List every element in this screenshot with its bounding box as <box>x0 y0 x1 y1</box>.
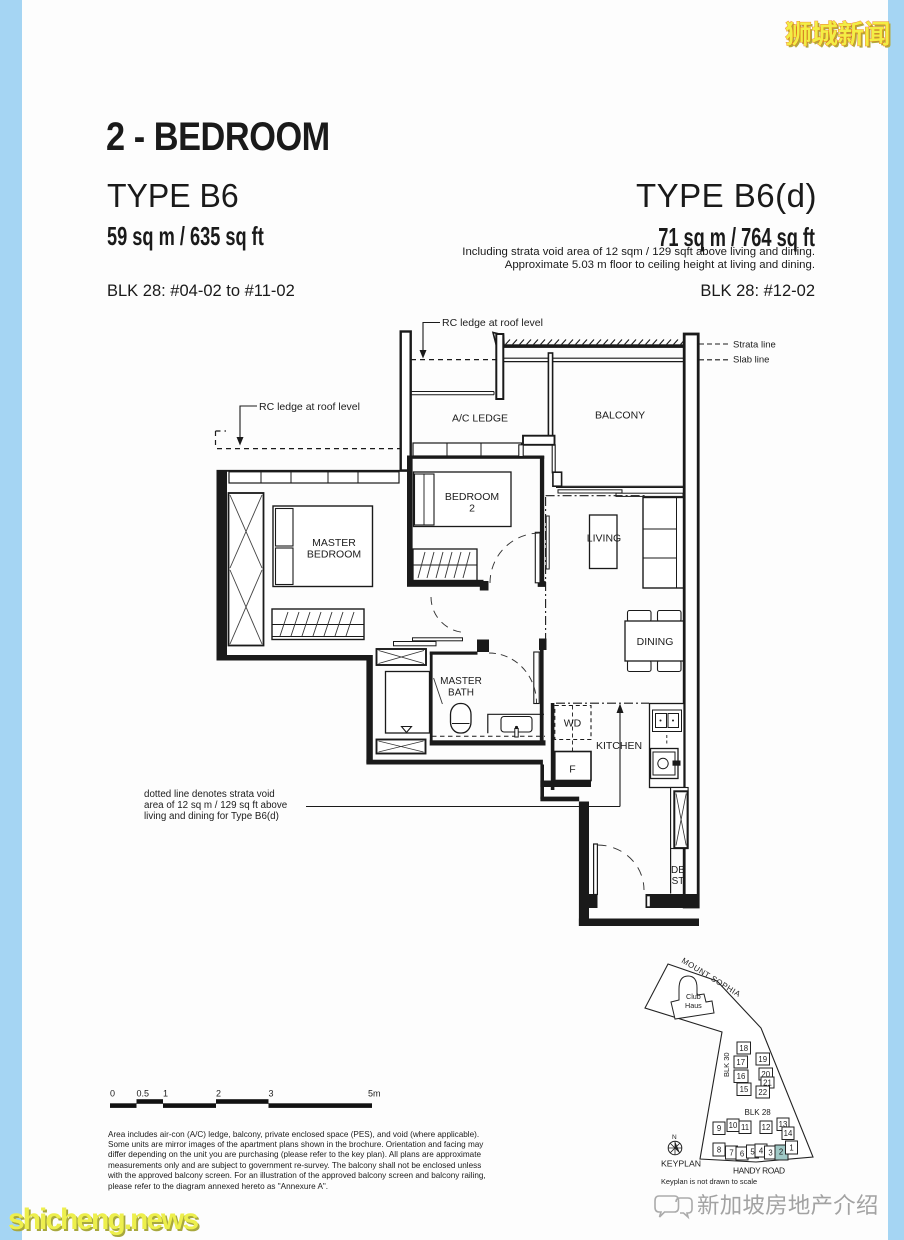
svg-text:Haus: Haus <box>685 1001 702 1010</box>
svg-text:N: N <box>672 1134 677 1141</box>
svg-text:BALCONY: BALCONY <box>595 410 645 422</box>
svg-text:2: 2 <box>469 503 475 515</box>
svg-text:17: 17 <box>736 1058 745 1067</box>
svg-text:22: 22 <box>758 1088 767 1097</box>
svg-text:6: 6 <box>740 1150 744 1159</box>
svg-text:area of 12 sq m / 129 sq ft ab: area of 12 sq m / 129 sq ft above <box>144 800 288 811</box>
svg-text:ST: ST <box>672 876 685 887</box>
svg-text:Keyplan is not drawn to scale: Keyplan is not drawn to scale <box>661 1177 757 1186</box>
svg-text:14: 14 <box>784 1129 793 1138</box>
svg-text:MASTER: MASTER <box>440 676 482 687</box>
svg-text:RC ledge at roof level: RC ledge at roof level <box>442 317 543 329</box>
svg-text:MASTER: MASTER <box>312 537 356 549</box>
svg-text:living and dining for Type B6(: living and dining for Type B6(d) <box>144 811 279 822</box>
svg-text:DB: DB <box>671 865 685 876</box>
svg-text:Club: Club <box>686 992 701 1001</box>
svg-text:3: 3 <box>768 1149 772 1158</box>
svg-text:2: 2 <box>216 1089 221 1099</box>
svg-text:19: 19 <box>758 1055 767 1064</box>
svg-text:16: 16 <box>737 1072 746 1081</box>
svg-text:BLK 30: BLK 30 <box>722 1052 731 1077</box>
svg-text:11: 11 <box>741 1123 749 1132</box>
svg-text:0: 0 <box>110 1089 115 1099</box>
svg-text:Slab line: Slab line <box>733 355 769 366</box>
svg-text:9: 9 <box>717 1124 721 1133</box>
svg-text:DINING: DINING <box>637 636 674 648</box>
svg-text:BATH: BATH <box>448 688 474 699</box>
svg-text:4: 4 <box>759 1147 764 1156</box>
svg-text:1: 1 <box>163 1089 168 1099</box>
svg-text:BEDROOM: BEDROOM <box>445 491 499 503</box>
svg-text:7: 7 <box>729 1149 733 1158</box>
svg-text:RC ledge at roof level: RC ledge at roof level <box>259 401 360 413</box>
svg-text:3: 3 <box>269 1089 274 1099</box>
svg-text:0.5: 0.5 <box>137 1089 150 1099</box>
svg-text:2: 2 <box>779 1148 783 1157</box>
svg-text:8: 8 <box>717 1146 721 1155</box>
svg-text:5m: 5m <box>368 1089 381 1099</box>
svg-text:A/C LEDGE: A/C LEDGE <box>452 413 508 425</box>
svg-text:1: 1 <box>789 1144 793 1153</box>
svg-text:10: 10 <box>729 1121 738 1130</box>
svg-text:LIVING: LIVING <box>587 533 621 545</box>
svg-text:Strata line: Strata line <box>733 340 776 351</box>
svg-text:KITCHEN: KITCHEN <box>596 740 642 752</box>
svg-text:HANDY ROAD: HANDY ROAD <box>733 1166 785 1176</box>
svg-text:BLK 28: BLK 28 <box>745 1108 772 1117</box>
svg-text:BEDROOM: BEDROOM <box>307 549 361 561</box>
svg-text:KEYPLAN: KEYPLAN <box>661 1159 701 1169</box>
svg-text:18: 18 <box>739 1044 748 1053</box>
svg-text:F: F <box>569 764 575 776</box>
svg-text:dotted line denotes strata voi: dotted line denotes strata void <box>144 789 275 800</box>
svg-text:15: 15 <box>740 1085 749 1094</box>
svg-text:12: 12 <box>762 1123 771 1132</box>
